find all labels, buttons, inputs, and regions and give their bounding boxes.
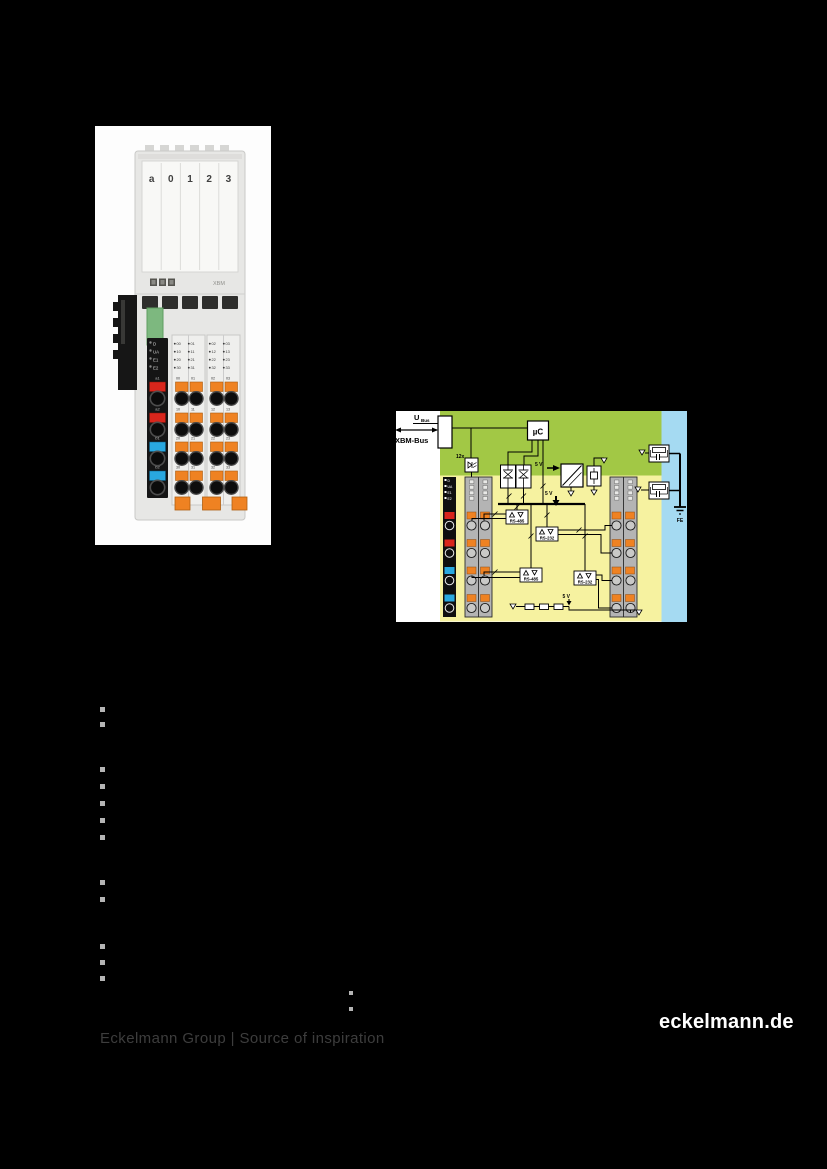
label-card: a 0 1 2 3: [142, 161, 238, 272]
led-label: E2: [153, 366, 159, 371]
port-label: a1: [155, 376, 160, 381]
led-label: E2: [448, 497, 452, 501]
led-label: UA: [153, 350, 159, 355]
supply-label: 5 V: [545, 491, 553, 497]
slot-label: a: [149, 174, 155, 185]
slot-label: 2: [206, 174, 212, 185]
footer-tagline: Eckelmann Group | Source of inspiration: [100, 1030, 385, 1047]
list-bullet: [100, 835, 105, 840]
port-label: b2: [155, 465, 160, 470]
block-diagram-drawing: U Bus XBM-Bus µC 12x: [393, 408, 690, 625]
bus-voltage-subscript: Bus: [421, 418, 430, 423]
diagram-terminal-block-right: [610, 477, 637, 617]
interface-label: RS-232: [540, 535, 555, 540]
interface-box-rs232-2: RS-232: [574, 571, 596, 585]
mcu-label: µC: [533, 428, 544, 437]
earth-area: [662, 411, 688, 622]
terminal-block-1: 0001 1011 2021 3031 0001 1011 2021 3031: [172, 335, 205, 505]
optocoupler-count-label: 12x: [456, 454, 465, 460]
list-bullet: [349, 991, 353, 995]
module-top-edge: [138, 154, 242, 159]
port-label: a2: [155, 407, 160, 412]
list-bullet: [100, 707, 105, 712]
dcdc-converter-box: [561, 464, 583, 487]
driver-box-1: [501, 465, 516, 488]
rc-filter-box-2: [649, 482, 669, 499]
list-bullet: [100, 818, 105, 823]
list-bullet: [100, 880, 105, 885]
led-label: D: [153, 342, 156, 347]
power-strip: D UA E1 E2 a1 a2 b1 b2: [147, 338, 168, 498]
module-type-label: XBM: [213, 281, 225, 287]
list-bullet: [100, 976, 105, 981]
interface-box-rs232-1: RS-232: [536, 527, 558, 541]
optocoupler-box: [465, 458, 478, 472]
eckelmann-logo: [150, 279, 175, 287]
rc-filter-box-1: [649, 445, 669, 462]
list-bullet: [100, 722, 105, 727]
interface-label: RS-232: [578, 579, 593, 584]
interface-label: RS-485: [524, 576, 539, 581]
bus-voltage-label: U: [414, 413, 419, 422]
driver-box-2: [516, 465, 531, 488]
list-bullet: [349, 1007, 353, 1011]
capacitor-box: [587, 466, 601, 486]
slot-label: 1: [187, 174, 193, 185]
list-bullet: [100, 767, 105, 772]
mounting-feet: [175, 497, 247, 510]
terminal-block-2: 0203 1213 2223 3233 0203 1213 2223 3233: [207, 335, 240, 505]
terminal-slot-row: [142, 296, 238, 309]
bus-connector-box: [438, 416, 452, 448]
supply-label: 5 V: [535, 462, 543, 468]
led-label: E1: [153, 358, 159, 363]
earth-label: FE: [677, 518, 684, 524]
led-label: E1: [448, 491, 452, 495]
port-label: b1: [155, 436, 160, 441]
list-bullet: [100, 944, 105, 949]
bus-label: XBM-Bus: [395, 436, 428, 445]
module-photo-drawing: a 0 1 2 3 XBM D UA E1 E2 a1 a2 b1: [95, 126, 271, 545]
list-bullet: [100, 960, 105, 965]
footer-website: eckelmann.de: [659, 1011, 794, 1034]
list-bullet: [100, 784, 105, 789]
slot-label: 3: [226, 174, 232, 185]
product-photo: a 0 1 2 3 XBM D UA E1 E2 a1 a2 b1: [95, 126, 271, 545]
diagram-power-strip: D UA E1 E2: [443, 477, 456, 617]
diagram-terminal-block-left: [465, 477, 492, 617]
list-bullet: [100, 897, 105, 902]
led-label: UA: [448, 485, 453, 489]
datasheet-page: { "page": { "background": "#000000", "fo…: [0, 0, 827, 1169]
slot-label: 0: [168, 174, 174, 185]
block-diagram: U Bus XBM-Bus µC 12x: [393, 408, 690, 625]
interface-box-rs485-2: RS-485: [520, 568, 542, 582]
list-bullet: [100, 801, 105, 806]
interface-box-rs485-1: RS-485: [506, 510, 528, 524]
interface-label: RS-485: [510, 518, 525, 523]
